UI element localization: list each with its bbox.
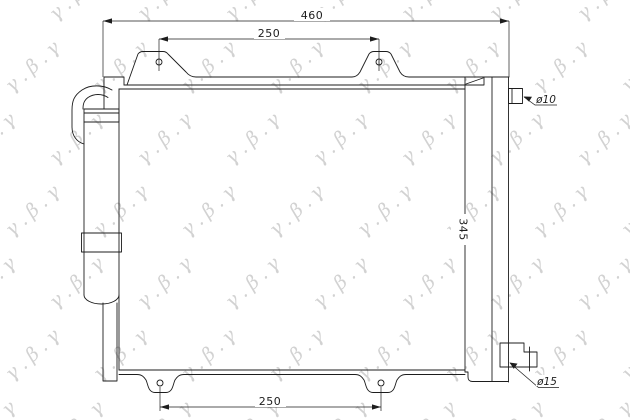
drier-cap <box>84 109 119 122</box>
arrowhead-right <box>500 18 509 23</box>
dimension-top-mount-spacing: 250 <box>159 26 379 71</box>
arrowhead-left <box>159 36 168 41</box>
corner-chamfer <box>465 77 484 85</box>
dimension-side-height: 345 <box>451 214 470 245</box>
bottom-bar <box>119 370 465 393</box>
bottom-mount-hole-right <box>378 380 384 386</box>
left-tank-top <box>104 77 124 109</box>
tank-bottom <box>465 372 509 382</box>
arrowhead-right <box>370 36 379 41</box>
left-side-assembly <box>72 86 122 381</box>
drawing-canvas: γ.β.γγ.β.γγ.β.γγ.β.γγ.β.γγ.β.γγ.β.γγ.β.γ… <box>0 0 630 420</box>
condenser-drawing: 460 250 <box>0 0 630 420</box>
leader-arrowhead <box>510 363 518 369</box>
bracket-profile <box>127 52 509 86</box>
arrowhead-left <box>103 18 112 23</box>
dimension-label-250-bottom: 250 <box>259 395 282 408</box>
arrowhead-right <box>372 404 381 409</box>
port-label-15: ø15 <box>536 376 557 388</box>
dimension-bottom-mount-spacing: 250 <box>160 387 381 411</box>
port-label-10: ø10 <box>535 94 556 106</box>
dimension-overall-width: 460 <box>103 8 509 77</box>
drier-outlet-pipe <box>103 303 117 381</box>
leader-arrowhead <box>524 97 533 102</box>
arrowhead-left <box>160 404 169 409</box>
port-block <box>500 343 537 367</box>
bottom-lower-edge-with-brackets <box>119 375 465 393</box>
top-bracket-plate <box>104 52 509 110</box>
top-port: ø10 <box>509 89 558 107</box>
right-side-tank <box>465 77 509 382</box>
drier-bottom-arc <box>84 295 119 304</box>
bottom-mount-hole-left <box>157 380 163 386</box>
drier-collar-band <box>82 233 122 252</box>
dimension-label-460: 460 <box>301 9 324 22</box>
dimension-label-345: 345 <box>457 218 470 241</box>
inlet-pipe-loop-outer <box>72 86 112 144</box>
dimension-label-250-top: 250 <box>258 27 281 40</box>
port-stub <box>509 89 523 104</box>
